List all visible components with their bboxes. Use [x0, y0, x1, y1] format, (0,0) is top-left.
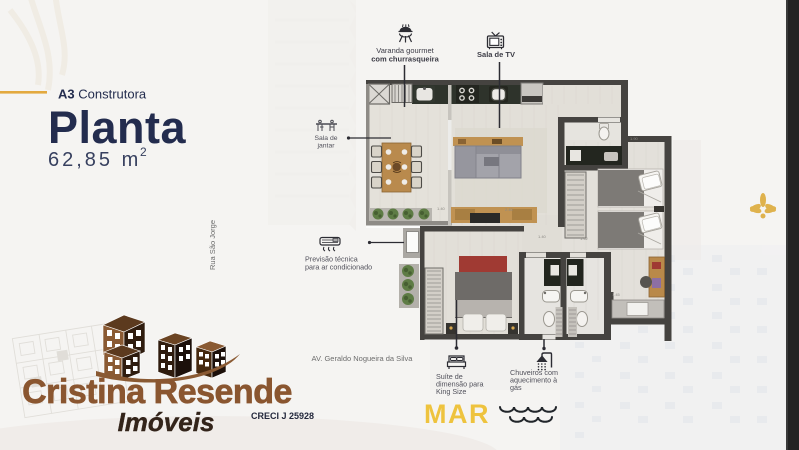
- svg-text:Cristina Resende: Cristina Resende: [22, 373, 292, 411]
- svg-text:1.40: 1.40: [538, 234, 547, 239]
- svg-text:gás: gás: [510, 383, 522, 392]
- svg-text:A3 Construtora: A3 Construtora: [58, 87, 147, 102]
- svg-text:2: 2: [140, 145, 147, 159]
- svg-text:Sala de: Sala de: [314, 135, 337, 142]
- svg-text:2.40: 2.40: [505, 207, 514, 212]
- svg-text:com churrasqueira: com churrasqueira: [371, 55, 439, 64]
- svg-text:Imóveis: Imóveis: [118, 407, 215, 437]
- svg-text:Sala de TV: Sala de TV: [477, 50, 515, 59]
- svg-text:MAR: MAR: [424, 399, 490, 429]
- svg-text:jantar: jantar: [316, 143, 335, 150]
- svg-text:CRECI J 25928: CRECI J 25928: [251, 411, 314, 421]
- svg-text:Rua São Jorge: Rua São Jorge: [208, 220, 217, 270]
- svg-text:1.45: 1.45: [612, 292, 621, 297]
- svg-text:Planta: Planta: [48, 102, 187, 153]
- svg-text:AV. Geraldo Nogueira da Silva: AV. Geraldo Nogueira da Silva: [312, 354, 414, 363]
- svg-text:1.90: 1.90: [630, 136, 639, 141]
- svg-text:62,85 m: 62,85 m: [48, 149, 141, 171]
- svg-text:1.40: 1.40: [437, 206, 446, 211]
- svg-text:para ar condicionado: para ar condicionado: [305, 263, 372, 272]
- svg-text:King Size: King Size: [436, 387, 466, 396]
- svg-text:1.42: 1.42: [580, 236, 589, 241]
